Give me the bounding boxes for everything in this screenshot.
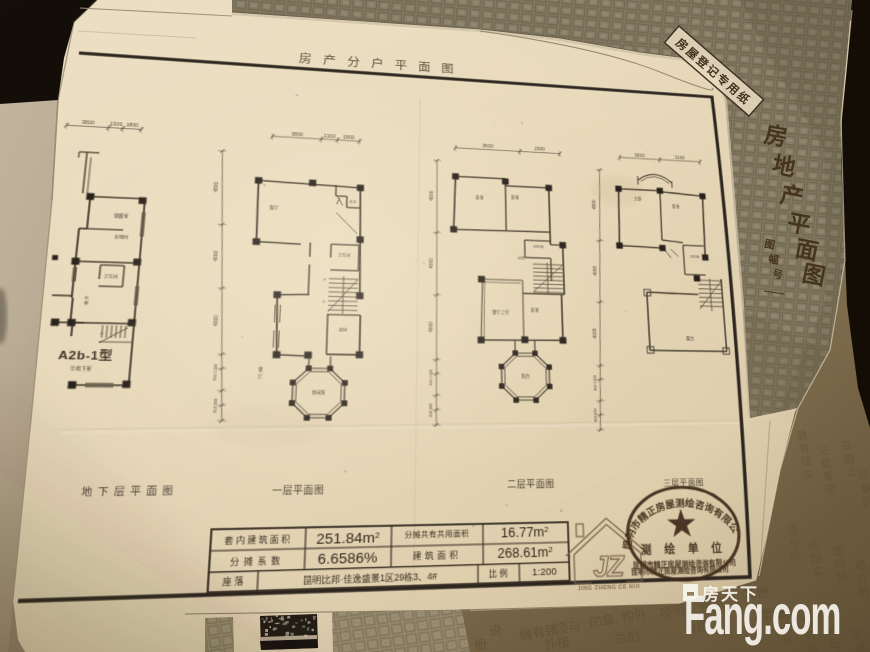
svg-text:Fang.com: Fang.com (684, 584, 840, 647)
